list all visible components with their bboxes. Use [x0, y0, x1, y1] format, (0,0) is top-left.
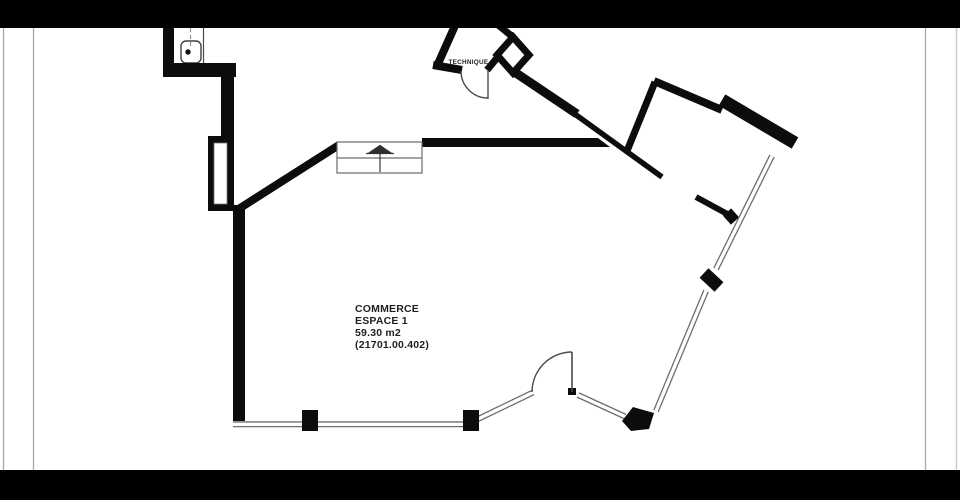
room-label-space: ESPACE 1	[355, 315, 408, 327]
storefront-pillar-right	[463, 410, 479, 431]
wall-top-left-horizontal	[163, 63, 236, 77]
floor-plan-page: TECHNIQUE COMMERCE ESPACE 1 59.30 m2 (21…	[0, 0, 960, 500]
room-label-reference: (21701.00.402)	[355, 339, 429, 351]
wall-top-horizontal	[422, 138, 598, 147]
page-background	[0, 0, 960, 500]
fixture-drain-dot-icon	[185, 49, 190, 54]
left-niche-window	[214, 143, 227, 204]
letterbox-top-bar	[0, 0, 960, 28]
room-label-name: COMMERCE	[355, 303, 419, 315]
technique-label: TECHNIQUE	[449, 59, 489, 66]
entrance-symbol	[337, 142, 422, 173]
letterbox-bottom-bar	[0, 470, 960, 500]
storefront-pillar-left	[302, 410, 318, 431]
room-label-area: 59.30 m2	[355, 327, 401, 339]
floor-plan-drawing: TECHNIQUE COMMERCE ESPACE 1 59.30 m2 (21…	[0, 0, 960, 500]
wall-left-main	[233, 205, 245, 421]
wall-left-upper	[221, 77, 234, 138]
wall-partition-stub-cap	[727, 212, 735, 221]
